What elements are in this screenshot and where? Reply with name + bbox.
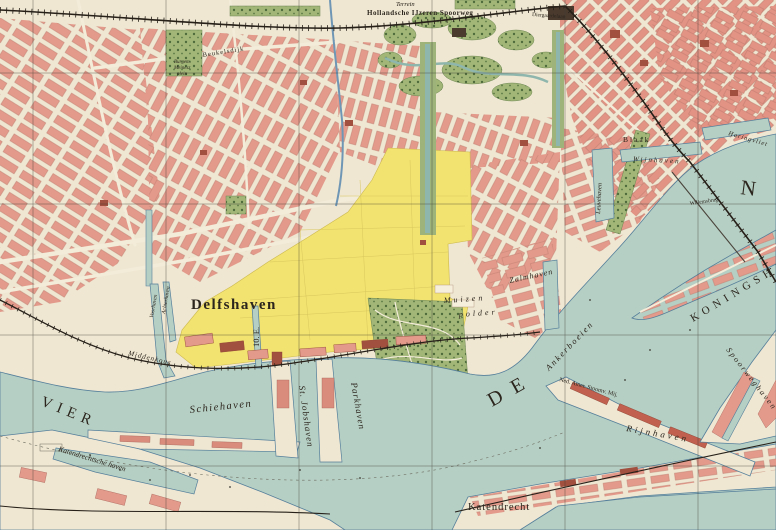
label-delfshaven: Delfshaven [191,297,277,313]
label-katendrecht: Katendrecht [468,502,530,513]
label-terrein: Terrein [396,1,415,8]
label-burgemeester-plein-2: Meinesz [173,66,190,71]
map-canvas[interactable]: Delfshaven 10. E. Schiehaven St. Jobshav… [0,0,776,530]
label-blaak: Blaak [623,135,651,144]
map-viewport[interactable]: Delfshaven 10. E. Schiehaven St. Jobshav… [0,0,776,530]
label-burgemeester-plein-3: plein [176,72,187,77]
label-hollandsche-spoorweg: Hollandsche IJzeren Spoorweg [367,9,473,17]
label-river-east: N [739,175,757,201]
label-burgemeester-plein-1: Burgem. [174,60,191,65]
label-sheet-code: 10. E. [251,327,261,347]
